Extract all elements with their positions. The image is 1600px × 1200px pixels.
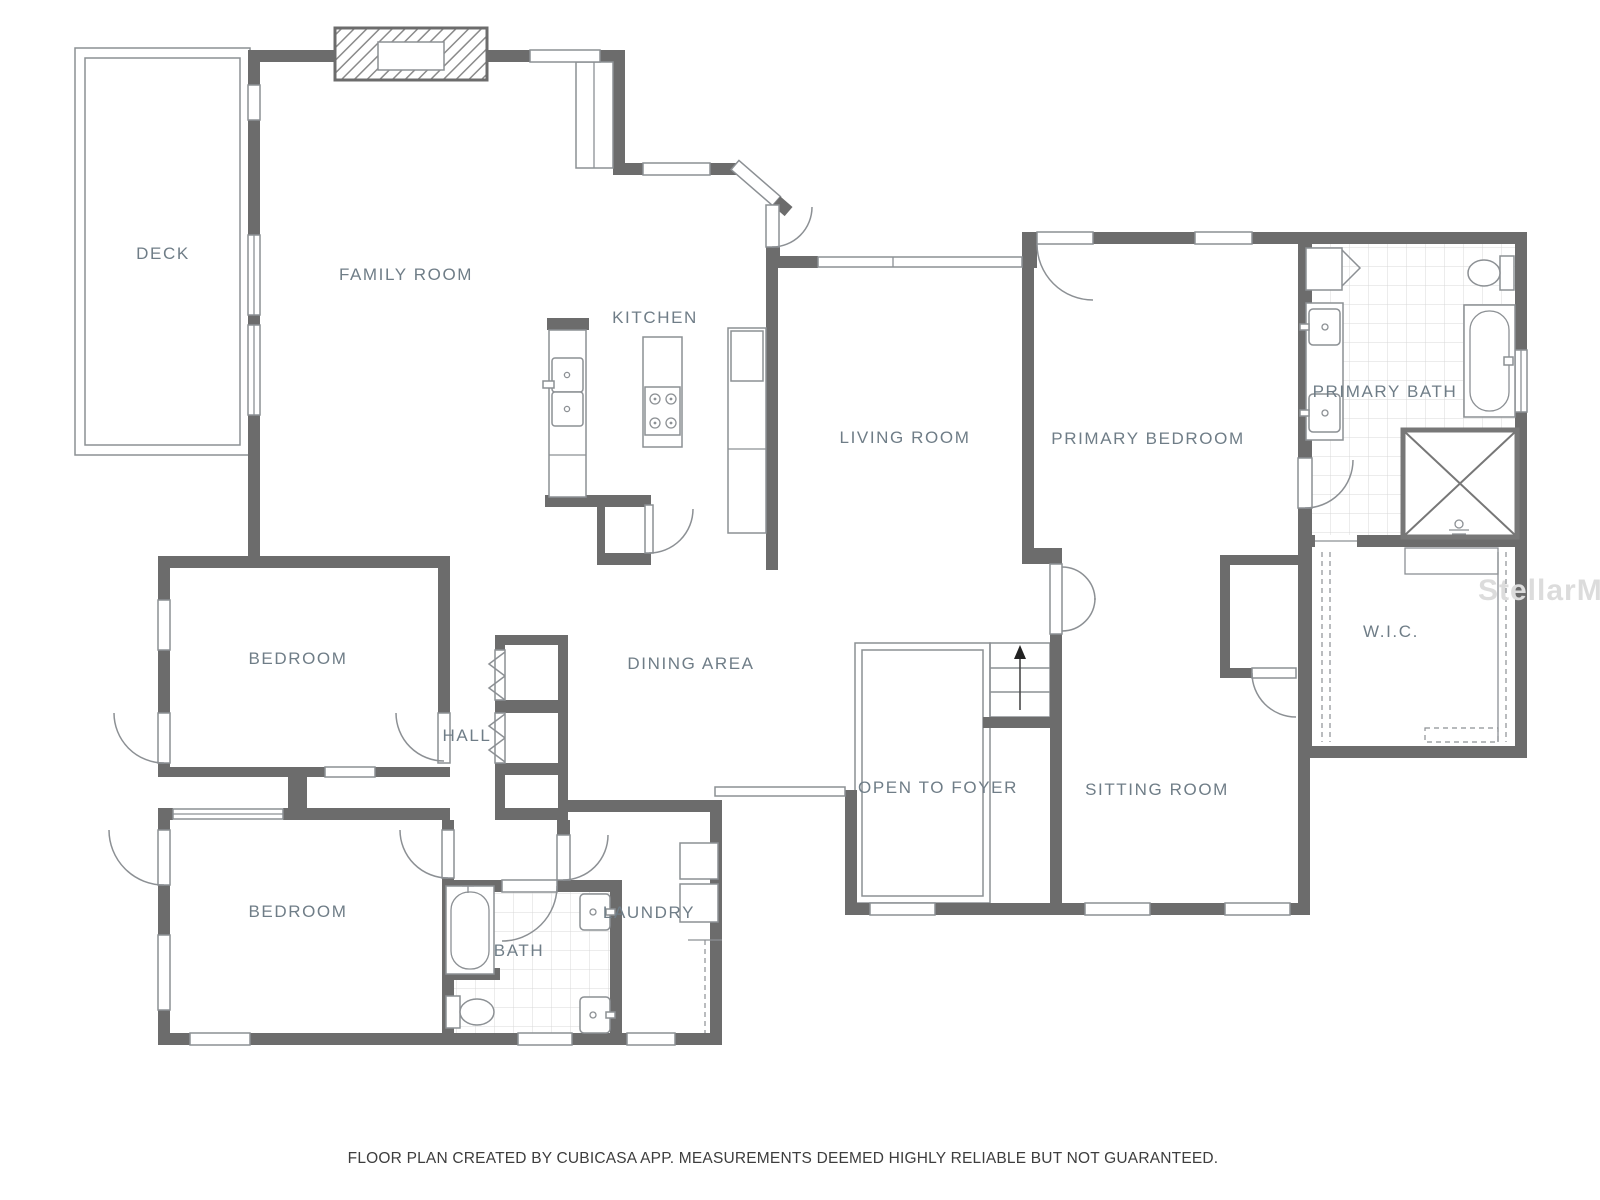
room-label-dining-area: DINING AREA [627,654,754,673]
window [158,600,170,650]
double-vanity [1300,303,1343,440]
slider-door [248,325,260,415]
refrigerator-icon [731,331,763,381]
room-label-open-to-foyer: OPEN TO FOYER [858,778,1018,797]
room-label-sitting-room: SITTING ROOM [1085,780,1229,799]
door-bedroom-lower-hall [400,830,454,878]
floor-plan-canvas: DECK FAMILY ROOM KITCHEN LIVING ROOM PRI… [0,0,1600,1200]
faucet-icon [1300,324,1309,330]
sink-icon [552,358,583,392]
window [1515,350,1527,412]
stairs [990,643,1050,717]
chimney-shaft [576,62,613,168]
room-label-deck: DECK [136,244,190,263]
door-bedroom-upper-exterior [114,713,170,763]
shower-icon [1403,430,1517,537]
room-label-hall: HALL [443,726,492,745]
window [248,85,260,120]
windows [158,50,1527,1045]
sink-icon [552,392,583,426]
window [530,50,600,62]
door-primary-bedroom-top [1037,232,1093,300]
room-label-bath: BATH [494,941,544,960]
room-label-living-room: LIVING ROOM [840,428,971,447]
slider-door [248,235,260,315]
kitchen-counter-right [728,328,766,533]
watermark: StellarMLS [1478,574,1600,607]
toilet-icon [446,996,494,1028]
faucet-icon [1300,410,1309,416]
closet-slider [173,809,283,819]
room-label-primary-bedroom: PRIMARY BEDROOM [1051,429,1244,448]
window [1225,903,1290,915]
room-label-family-room: FAMILY ROOM [339,265,473,284]
door-sitting-room-double-swing [1050,564,1095,634]
kitchen-counter-left [543,330,586,497]
floor-plan-page: DECK FAMILY ROOM KITCHEN LIVING ROOM PRI… [0,0,1600,1200]
room-label-kitchen: KITCHEN [612,308,698,327]
stairs-up-arrow-icon [1014,645,1026,659]
window [518,1033,572,1045]
room-label-laundry: LAUNDRY [603,903,695,922]
washer-icon [680,843,718,879]
window [1195,232,1252,244]
faucet-icon [606,1012,615,1018]
door-sitting-closet [1252,668,1296,717]
stove-icon [645,387,680,435]
disclaimer-text: FLOOR PLAN CREATED BY CUBICASA APP. MEAS… [348,1150,1219,1167]
fireplace [335,28,487,80]
room-divider [715,787,845,796]
kitchen-island [643,337,682,447]
door-laundry [557,835,608,880]
faucet-icon [1504,357,1513,365]
room-label-bedroom-upper: BEDROOM [248,649,347,668]
bathtub-icon [1464,305,1515,417]
room-label-wic: W.I.C. [1363,622,1419,641]
foyer-opening-outline [855,643,990,903]
window [627,1033,675,1045]
window [190,1033,250,1045]
vanity-sink [580,997,615,1033]
cased-opening [325,767,375,777]
room-label-bedroom-lower: BEDROOM [248,902,347,921]
faucet-icon [543,381,554,388]
window [643,163,710,175]
door-family-room-east [766,205,812,247]
bathtub-icon [446,886,494,974]
doors [109,205,1360,941]
window [870,903,935,915]
door-pantry [645,505,693,553]
opening-band [818,257,1022,267]
window [1085,903,1150,915]
bay-window [731,160,792,216]
window [158,935,170,1010]
door-bedroom-lower-exterior [109,830,170,885]
sink-icon [1309,309,1340,345]
room-labels: DECK FAMILY ROOM KITCHEN LIVING ROOM PRI… [136,244,1457,960]
walls [158,50,1527,1045]
room-label-primary-bath: PRIMARY BATH [1313,382,1458,401]
